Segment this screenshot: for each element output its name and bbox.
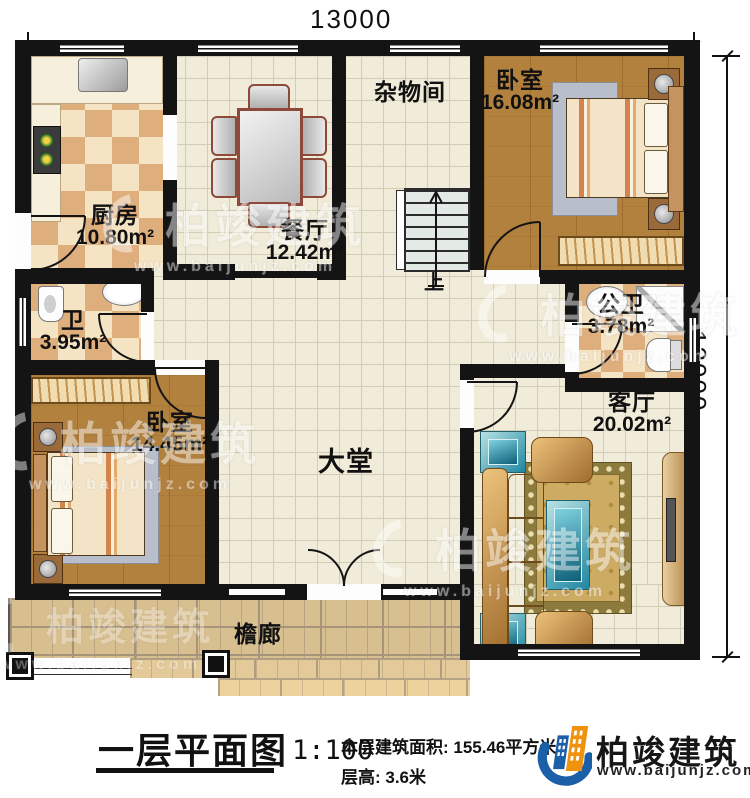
room-name: 卫 [30,308,116,332]
room-name: 厨房 [55,203,175,227]
porch-step-2 [218,678,470,696]
wall-living-top [460,364,579,378]
dining-chair [301,116,327,156]
dimension-top-label: 13000 [310,4,392,35]
window-bath2 [686,316,699,364]
window-kitchen [58,42,126,55]
nightstand [33,554,63,584]
floor-height-text: 层高: 3.6米 [341,763,426,788]
dining-chair [301,158,327,198]
doorway-bath2 [565,322,579,372]
wall-dining-bottom-left [163,264,235,280]
room-label-porch: 檐廊 [222,622,294,646]
kitchen-sink [78,58,128,92]
window-bedroom2 [67,586,163,599]
room-area: 3.78m² [578,316,664,338]
room-name: 杂物间 [360,80,460,104]
room-label-bedroom1: 卧室 16.08m² [472,68,568,114]
room-label-living: 客厅 20.02m² [580,390,684,436]
room-area: 16.08m² [472,92,568,114]
room-name: 餐厅 [250,218,360,242]
doorway-kitchen-exterior [15,213,31,269]
bed-headboard [33,454,47,552]
side-table [480,431,526,473]
bed-headboard [668,86,684,212]
sofa-back [482,468,508,658]
doorway-bedroom1 [484,270,540,284]
porch-column [202,650,230,678]
room-label-bedroom2: 卧室 14.45m² [120,410,220,456]
room-label-kitchen: 厨房 10.80m² [55,203,175,249]
window-bedroom1 [538,42,670,55]
bed-pillow [644,103,668,147]
title-underline [96,768,274,773]
room-name: 卧室 [120,410,220,434]
room-area: 12.42m² [250,242,360,264]
bedroom2-wardrobe [31,377,151,404]
dining-table [237,108,303,206]
room-label-bath2: 公卫 3.78m² [578,292,664,338]
kitchen-stove [33,126,61,174]
wall-kitchen-bottom [15,268,154,284]
staircase [404,188,470,272]
doorway-living [460,380,474,428]
bed-pillow [644,150,668,194]
porch-column [6,652,34,680]
room-name: 檐廊 [222,622,294,646]
doorway-bath1 [141,312,154,360]
wall-dining-opening-sill [235,271,317,278]
window-living [516,646,642,659]
coffee-table [546,500,590,590]
drawing-title: 一层平面图 [98,722,288,774]
doorway-bedroom2 [155,360,205,375]
window-bath1 [16,296,29,348]
room-name: 公卫 [578,292,664,316]
floor-plan-page: 13000 12000 [0,0,750,798]
dining-chair [211,116,237,156]
window-entry-sidelight [228,588,286,596]
dining-chair [211,158,237,198]
room-area: 20.02m² [580,414,684,436]
window-storage [388,42,462,55]
window-dining [196,42,300,55]
opening-kitchen-dining [163,115,177,180]
room-area: 14.45m² [120,434,220,456]
bed-pillow [51,456,73,502]
room-area: 3.95m² [30,332,116,354]
floor-area-text: 本层建筑面积: 155.46平方米 [341,733,556,758]
dining-chair [248,84,290,110]
nightstand [33,422,63,452]
room-label-dining: 餐厅 12.42m² [250,218,360,264]
wall-bedroom2-right [205,360,219,584]
armchair [531,437,593,483]
staircase-rail [396,190,405,270]
doorway-front-entrance [307,584,381,600]
stairs-up-label: 上 [424,266,444,295]
room-label-storage: 杂物间 [360,80,460,104]
tv [666,498,676,562]
porch-step-1 [130,658,470,678]
room-label-bath1: 卫 3.95m² [30,308,116,354]
room-name: 大堂 [310,448,382,476]
bedroom1-wardrobe [558,236,684,266]
room-area: 10.80m² [55,227,175,249]
bath2-toilet [646,338,672,372]
window-entry-sidelight [382,588,438,596]
brand-logo-icon [532,718,592,792]
room-name: 卧室 [472,68,568,92]
brand-url: www.baijunjz.com [597,762,750,779]
room-label-hall: 大堂 [310,448,382,476]
bed-pillow [51,508,73,554]
room-name: 客厅 [580,390,684,414]
dimension-right-line [726,56,728,658]
